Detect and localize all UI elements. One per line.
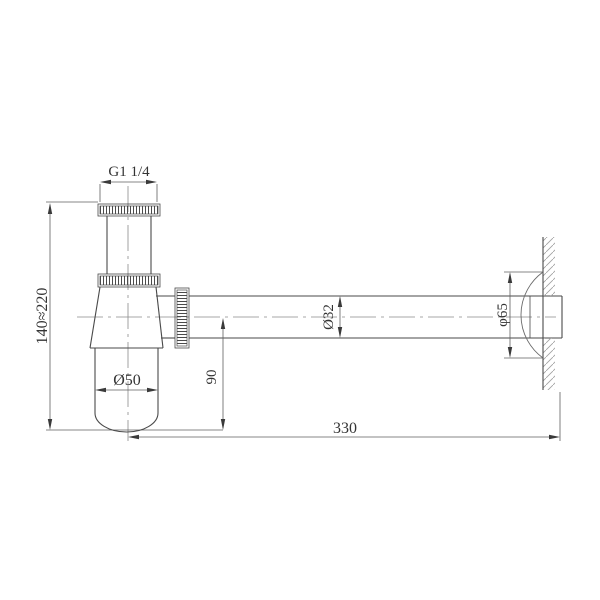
cup-diameter-label: Ø50 xyxy=(113,372,141,389)
bottle-trap-technical-drawing: G1 1/4 140≈220 Ø50 xyxy=(0,0,600,600)
arrowhead xyxy=(146,180,157,184)
outlet-nut xyxy=(156,288,189,348)
arrowhead xyxy=(100,180,111,184)
flange-diameter-dimension: φ65 xyxy=(495,272,543,358)
wall-hatching-lower xyxy=(543,338,555,390)
arrowhead xyxy=(221,419,225,430)
height-range-label: 140≈220 xyxy=(34,288,51,345)
outlet-height-label: 90 xyxy=(204,370,220,385)
lower-coupling-nut-knurl xyxy=(100,276,158,285)
flange-diameter-label: φ65 xyxy=(495,303,511,327)
pipe-diameter-dimension: Ø32 xyxy=(321,296,342,338)
arrowhead xyxy=(48,419,52,430)
bottle-trap-body xyxy=(90,204,163,432)
arrowhead xyxy=(147,388,158,392)
top-coupling-nut-knurl xyxy=(100,206,158,214)
wall-hatching-upper xyxy=(543,237,555,296)
cone-left-edge xyxy=(90,287,100,348)
arrowhead xyxy=(95,388,106,392)
centerlines xyxy=(77,186,556,441)
page: { "drawing": { "labels": { "thread_size"… xyxy=(0,0,600,600)
pipe-length-label: 330 xyxy=(333,420,357,437)
pipe-diameter-label: Ø32 xyxy=(321,304,337,330)
thread-size-label: G1 1/4 xyxy=(108,164,150,180)
height-dimension: 140≈220 xyxy=(34,202,223,430)
arrowhead xyxy=(549,435,560,439)
arrowhead xyxy=(508,347,512,358)
arrowhead xyxy=(338,327,342,338)
cup-rounded-bottom xyxy=(95,413,158,432)
cup-diameter-dimension: Ø50 xyxy=(95,372,158,392)
flange-dome-outline xyxy=(521,272,543,358)
arrowhead xyxy=(128,435,139,439)
arrowhead xyxy=(221,318,225,329)
arrowhead xyxy=(508,272,512,283)
outlet-height-dimension: 90 xyxy=(204,318,225,430)
outlet-nut-knurl xyxy=(177,290,187,346)
pipe-length-dimension: 330 xyxy=(128,392,560,441)
wall-section xyxy=(521,237,555,390)
arrowhead xyxy=(338,296,342,307)
thread-dimension: G1 1/4 xyxy=(100,164,157,202)
arrowhead xyxy=(48,203,52,214)
